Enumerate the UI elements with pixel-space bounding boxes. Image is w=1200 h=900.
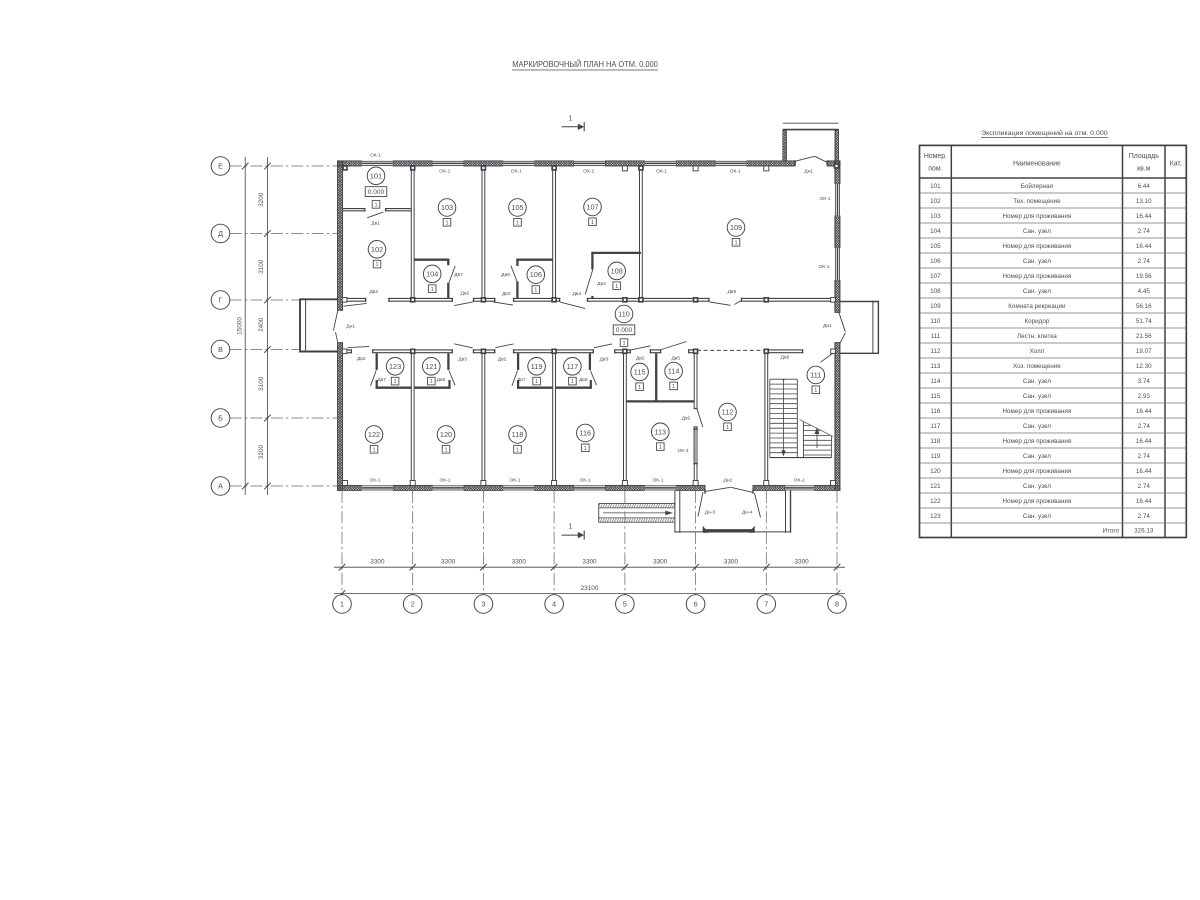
svg-text:1: 1: [394, 379, 397, 385]
svg-text:Наименование: Наименование: [1013, 160, 1061, 167]
svg-text:ОК-1: ОК-1: [370, 152, 381, 158]
svg-text:16.44: 16.44: [1136, 498, 1152, 505]
svg-text:ОК-1: ОК-1: [579, 478, 590, 484]
svg-text:112: 112: [722, 408, 734, 417]
svg-text:Дн-4: Дн-4: [742, 509, 753, 515]
svg-text:16.44: 16.44: [1136, 438, 1152, 445]
svg-text:122: 122: [368, 430, 380, 439]
svg-text:Дв5: Дв5: [671, 355, 680, 361]
svg-text:6.44: 6.44: [1138, 183, 1151, 190]
svg-text:ОК-1: ОК-1: [511, 169, 522, 175]
svg-text:3300: 3300: [370, 559, 385, 566]
svg-text:Дв3: Дв3: [502, 291, 511, 297]
svg-text:1: 1: [734, 240, 737, 246]
svg-text:Сан. узел: Сан. узел: [1023, 393, 1051, 400]
svg-text:Сан. узел: Сан. узел: [1023, 453, 1051, 460]
svg-text:Номер для проживания: Номер для проживания: [1002, 213, 1071, 220]
svg-text:Дв2: Дв2: [636, 355, 645, 361]
svg-text:6: 6: [694, 600, 698, 609]
svg-text:121: 121: [930, 483, 941, 490]
svg-text:Сан. узел: Сан. узел: [1023, 378, 1051, 385]
svg-text:56.16: 56.16: [1136, 303, 1152, 310]
svg-text:104: 104: [930, 228, 941, 235]
svg-text:3.74: 3.74: [1138, 378, 1151, 385]
svg-text:Дв7: Дв7: [377, 377, 386, 383]
svg-text:1: 1: [444, 447, 447, 453]
svg-text:110: 110: [618, 310, 630, 319]
svg-text:1: 1: [534, 288, 537, 294]
svg-text:Сан. узел: Сан. узел: [1023, 423, 1051, 430]
svg-text:пом.: пом.: [928, 166, 942, 173]
svg-text:Дв8: Дв8: [501, 272, 510, 278]
svg-text:ОК-1: ОК-1: [652, 478, 663, 484]
svg-text:1: 1: [445, 220, 448, 226]
svg-text:В: В: [218, 345, 223, 354]
svg-text:0.000: 0.000: [368, 189, 385, 196]
svg-text:Сан. узел: Сан. узел: [1023, 288, 1051, 295]
svg-text:15000: 15000: [237, 317, 244, 335]
svg-text:Тех. помещение: Тех. помещение: [1013, 198, 1061, 205]
svg-text:ОК-1: ОК-1: [583, 169, 594, 175]
svg-text:16.44: 16.44: [1136, 213, 1152, 220]
svg-text:Дв9: Дв9: [728, 289, 737, 295]
svg-text:Комната рекреации: Комната рекреации: [1008, 303, 1066, 310]
svg-text:1: 1: [726, 425, 729, 431]
svg-text:0.000: 0.000: [616, 327, 633, 334]
svg-text:Номер для проживания: Номер для проживания: [1002, 438, 1071, 445]
svg-text:3200: 3200: [258, 444, 265, 459]
svg-text:1: 1: [516, 447, 519, 453]
svg-text:3300: 3300: [653, 559, 668, 566]
svg-text:ОК-1: ОК-1: [656, 169, 667, 175]
svg-text:16.44: 16.44: [1136, 468, 1152, 475]
svg-text:114: 114: [668, 367, 680, 376]
svg-text:107: 107: [930, 273, 941, 280]
svg-text:106: 106: [530, 270, 542, 279]
svg-text:2: 2: [411, 600, 415, 609]
svg-text:120: 120: [930, 468, 941, 475]
svg-text:Сан. узел: Сан. узел: [1023, 513, 1051, 520]
svg-text:3: 3: [481, 600, 485, 609]
svg-text:ОК-3: ОК-3: [677, 448, 688, 454]
svg-text:3100: 3100: [258, 376, 265, 391]
svg-text:1: 1: [591, 220, 594, 226]
svg-text:119: 119: [531, 362, 543, 371]
svg-text:1: 1: [638, 385, 641, 391]
svg-text:Хоз. помещение: Хоз. помещение: [1013, 363, 1061, 370]
svg-text:113: 113: [930, 363, 941, 370]
svg-text:108: 108: [930, 288, 941, 295]
svg-text:3200: 3200: [258, 192, 265, 207]
svg-text:ОК-1: ОК-1: [818, 264, 829, 270]
svg-text:1: 1: [375, 262, 378, 268]
svg-text:Дв2: Дв2: [357, 356, 366, 362]
svg-text:Дн2: Дн2: [724, 477, 733, 483]
svg-text:1: 1: [340, 600, 344, 609]
svg-text:4: 4: [552, 600, 556, 609]
svg-text:113: 113: [654, 427, 666, 436]
svg-text:1: 1: [571, 379, 574, 385]
svg-text:8: 8: [835, 600, 839, 609]
svg-text:107: 107: [586, 203, 598, 212]
svg-text:Дн1: Дн1: [346, 324, 355, 330]
svg-text:Сан. узел: Сан. узел: [1023, 228, 1051, 235]
svg-text:109: 109: [930, 303, 941, 310]
svg-text:3100: 3100: [258, 259, 265, 274]
svg-text:4.45: 4.45: [1138, 288, 1151, 295]
svg-text:1: 1: [659, 445, 662, 451]
svg-text:1: 1: [672, 384, 675, 390]
svg-text:Дн1: Дн1: [804, 169, 813, 175]
svg-text:103: 103: [441, 203, 453, 212]
svg-text:326.13: 326.13: [1134, 528, 1154, 535]
svg-text:2.74: 2.74: [1138, 258, 1151, 265]
svg-text:2.74: 2.74: [1138, 483, 1151, 490]
svg-text:112: 112: [930, 348, 941, 355]
svg-text:19.07: 19.07: [1136, 348, 1152, 355]
svg-text:Сан. узел: Сан. узел: [1023, 483, 1051, 490]
svg-text:Сан. узел: Сан. узел: [1023, 258, 1051, 265]
svg-text:116: 116: [930, 408, 941, 415]
svg-text:кв.м: кв.м: [1137, 166, 1151, 173]
svg-text:Дв8: Дв8: [437, 377, 446, 383]
svg-text:1: 1: [374, 203, 377, 209]
svg-text:1: 1: [372, 447, 375, 453]
svg-text:Кат.: Кат.: [1170, 160, 1182, 167]
svg-text:111: 111: [810, 371, 821, 380]
svg-text:3300: 3300: [441, 559, 456, 566]
svg-text:Номер для проживания: Номер для проживания: [1002, 468, 1071, 475]
svg-text:3300: 3300: [582, 559, 597, 566]
svg-text:2.74: 2.74: [1138, 228, 1151, 235]
svg-text:Бойлерная: Бойлерная: [1021, 182, 1053, 190]
svg-text:Дв2: Дв2: [498, 357, 507, 363]
svg-text:Дв1: Дв1: [371, 220, 380, 226]
svg-text:ОК-1: ОК-1: [439, 478, 450, 484]
svg-text:Экспликация помещений на отм.: Экспликация помещений на отм. 0.000: [981, 129, 1108, 137]
svg-text:Дв7: Дв7: [517, 377, 526, 383]
svg-text:Дв3: Дв3: [458, 357, 467, 363]
svg-text:МАРКИРОВОЧНЫЙ ПЛАН НА ОТМ. 0.0: МАРКИРОВОЧНЫЙ ПЛАН НА ОТМ. 0.000: [512, 58, 658, 69]
svg-text:116: 116: [579, 429, 591, 438]
svg-text:ОК-1: ОК-1: [819, 196, 830, 202]
svg-text:Дв4: Дв4: [573, 291, 582, 297]
svg-text:12.30: 12.30: [1136, 363, 1152, 370]
svg-text:1: 1: [615, 284, 618, 290]
svg-text:2.93: 2.93: [1138, 393, 1151, 400]
svg-text:2400: 2400: [258, 317, 265, 332]
svg-text:51.74: 51.74: [1136, 318, 1152, 325]
svg-text:ОК-1: ОК-1: [369, 478, 380, 484]
svg-text:Г: Г: [219, 296, 223, 305]
svg-text:3300: 3300: [512, 559, 527, 566]
svg-text:1: 1: [431, 287, 434, 293]
svg-text:105: 105: [930, 243, 941, 250]
svg-text:А: А: [218, 482, 223, 491]
svg-text:Б: Б: [218, 414, 223, 423]
svg-text:Дв9: Дв9: [781, 354, 790, 360]
svg-text:7: 7: [764, 600, 768, 609]
svg-text:Коридор: Коридор: [1024, 318, 1049, 325]
svg-text:115: 115: [930, 393, 941, 400]
svg-text:102: 102: [930, 198, 941, 205]
svg-text:123: 123: [930, 513, 941, 520]
svg-text:ОК-2: ОК-2: [794, 478, 805, 484]
svg-text:ОК-1: ОК-1: [439, 169, 450, 175]
svg-text:114: 114: [930, 378, 941, 385]
svg-text:111: 111: [931, 333, 941, 340]
svg-text:104: 104: [426, 269, 438, 278]
svg-text:16.44: 16.44: [1136, 243, 1152, 250]
svg-text:19.56: 19.56: [1136, 273, 1152, 280]
svg-text:119: 119: [930, 453, 941, 460]
svg-text:1: 1: [569, 524, 573, 531]
svg-text:103: 103: [930, 213, 941, 220]
svg-text:Итого: Итого: [1102, 528, 1119, 535]
svg-text:16.44: 16.44: [1136, 408, 1152, 415]
svg-text:23100: 23100: [581, 585, 599, 592]
svg-text:1: 1: [535, 379, 538, 385]
svg-text:120: 120: [440, 430, 452, 439]
svg-text:3300: 3300: [794, 559, 809, 566]
svg-text:109: 109: [730, 223, 742, 232]
svg-text:Номер для проживания: Номер для проживания: [1002, 498, 1071, 505]
svg-text:2.74: 2.74: [1138, 453, 1151, 460]
svg-text:110: 110: [930, 318, 941, 325]
svg-text:108: 108: [611, 266, 623, 275]
svg-text:101: 101: [370, 171, 382, 180]
svg-text:Дв2: Дв2: [369, 289, 378, 295]
svg-text:1: 1: [430, 379, 433, 385]
svg-text:Д: Д: [218, 229, 223, 238]
svg-text:Дв2: Дв2: [682, 415, 691, 421]
svg-text:118: 118: [930, 438, 941, 445]
svg-text:118: 118: [512, 430, 524, 439]
svg-text:1: 1: [622, 341, 625, 347]
svg-text:106: 106: [930, 258, 941, 265]
svg-text:13.10: 13.10: [1136, 198, 1152, 205]
svg-text:Дн-3: Дн-3: [705, 509, 716, 515]
svg-text:3300: 3300: [724, 559, 739, 566]
svg-text:ОК-1: ОК-1: [730, 169, 741, 175]
svg-text:Номер.: Номер.: [924, 153, 947, 160]
svg-text:Холл: Холл: [1029, 348, 1044, 355]
svg-text:117: 117: [567, 362, 579, 371]
svg-text:105: 105: [511, 203, 523, 212]
svg-text:Номер для проживания: Номер для проживания: [1002, 273, 1071, 280]
svg-text:1: 1: [569, 115, 573, 122]
svg-text:Дв4: Дв4: [597, 281, 606, 287]
svg-text:Номер для проживания: Номер для проживания: [1002, 408, 1071, 415]
svg-text:122: 122: [930, 498, 941, 505]
svg-text:Дв7: Дв7: [454, 272, 463, 278]
svg-text:Дв8: Дв8: [579, 377, 588, 383]
svg-text:21.56: 21.56: [1136, 333, 1152, 340]
svg-text:Площадь: Площадь: [1129, 153, 1159, 160]
svg-text:Номер для проживания: Номер для проживания: [1002, 243, 1071, 250]
svg-text:Е: Е: [218, 162, 223, 171]
svg-text:5: 5: [623, 600, 627, 609]
svg-text:1: 1: [814, 388, 817, 394]
svg-text:2.74: 2.74: [1138, 423, 1151, 430]
svg-text:121: 121: [425, 362, 437, 371]
svg-text:115: 115: [634, 367, 646, 376]
svg-text:1: 1: [516, 220, 519, 226]
svg-text:Дв3: Дв3: [600, 357, 609, 363]
svg-text:102: 102: [371, 245, 383, 254]
svg-text:117: 117: [930, 423, 941, 430]
svg-text:1: 1: [584, 446, 587, 452]
svg-text:101: 101: [930, 183, 941, 190]
svg-text:Дв2: Дв2: [461, 291, 470, 297]
svg-text:Лестн. клетка: Лестн. клетка: [1017, 333, 1057, 340]
svg-text:2.74: 2.74: [1138, 513, 1151, 520]
svg-text:Дн1: Дн1: [823, 323, 832, 329]
svg-text:ОК-1: ОК-1: [509, 478, 520, 484]
svg-text:123: 123: [389, 362, 401, 371]
